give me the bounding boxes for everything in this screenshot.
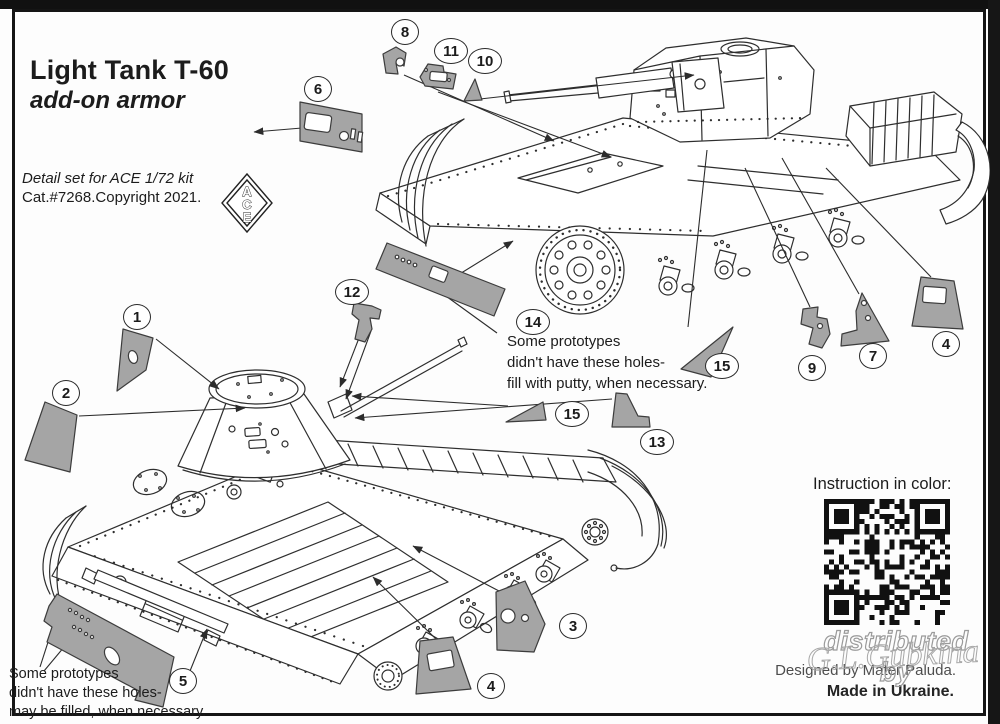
ace-logo: A C E [220,172,274,234]
callout-2: 2 [52,380,80,406]
callout-4: 4 [932,331,960,357]
callout-8: 8 [391,19,419,45]
callout-3: 3 [559,613,587,639]
callout-10: 10 [468,48,502,74]
callout-1: 1 [123,304,151,330]
page-title: Light Tank T-60 [30,55,229,86]
callout-15: 15 [705,353,739,379]
qr-code [824,499,950,625]
callout-6: 6 [304,76,332,102]
note-putty-line2: didn't have these holes- [507,352,707,373]
callout-13: 13 [640,429,674,455]
callout-9: 9 [798,355,826,381]
instruction-sheet: Light Tank T-60 add-on armor Detail set … [0,0,1000,724]
stowage-box [846,92,962,166]
callout-5: 5 [169,668,197,694]
turret-bottom-tank [178,370,350,481]
instruction-in-color-label: Instruction in color: [813,475,951,494]
callout-14: 14 [516,309,550,335]
callout-11: 11 [434,38,468,64]
callout-12: 12 [335,279,369,305]
sprocket-wheel [536,226,624,314]
note-filled-line3: may be filled, when necessary. [9,703,206,722]
note-putty-line3: fill with putty, when necessary. [507,373,707,394]
callout-4: 4 [477,673,505,699]
gun-barrel-bottom-tank [328,337,467,418]
logo-letter-e: E [243,210,252,225]
detail-set-line: Detail set for ACE 1/72 kit [22,170,193,187]
tank-drawing-top [368,18,990,336]
callout-15: 15 [555,401,589,427]
callout-7: 7 [859,343,887,369]
scan-edge-top [0,0,1000,9]
catalog-copyright-line: Cat.#7268.Copyright 2021. [22,189,201,206]
page-subtitle: add-on armor [30,87,185,115]
note-putty: Some prototypes didn't have these holes-… [507,331,707,394]
right-fender-band [326,440,616,482]
part-6-shape [300,102,363,152]
